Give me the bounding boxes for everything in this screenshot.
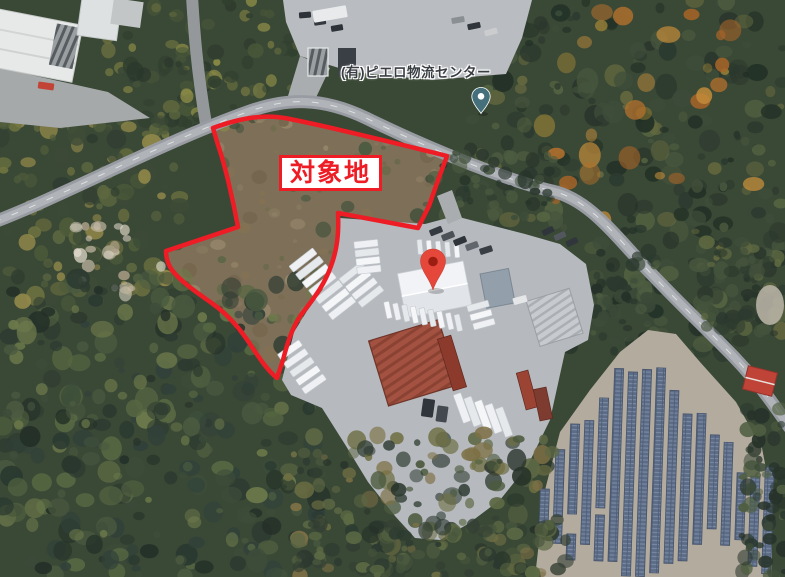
tree-blob — [630, 42, 646, 59]
tree-blob — [496, 180, 502, 187]
tree-blob — [147, 402, 169, 421]
tree-blob — [105, 379, 118, 392]
tree-blob — [14, 175, 21, 183]
tree-blob — [515, 97, 530, 109]
tree-blob — [747, 410, 756, 420]
tree-blob — [737, 309, 752, 320]
tree-blob — [99, 442, 110, 450]
tree-blob — [520, 43, 542, 62]
tree-blob — [455, 465, 465, 473]
tree-blob — [500, 563, 515, 577]
tree-blob — [174, 555, 187, 566]
tree-blob — [258, 23, 271, 32]
vehicle — [435, 405, 448, 422]
tree-blob — [110, 285, 120, 291]
tree-blob — [284, 473, 293, 481]
tree-blob — [511, 215, 518, 220]
tree-blob — [485, 548, 492, 556]
tree-blob — [346, 531, 362, 544]
tree-blob — [701, 321, 713, 332]
tree-blob — [414, 439, 420, 446]
tree-blob — [263, 264, 269, 271]
tree-blob — [173, 213, 184, 224]
tree-blob — [231, 346, 238, 352]
tree-blob — [492, 123, 500, 130]
tree-blob — [653, 260, 661, 267]
tree-blob — [382, 162, 386, 166]
tree-blob — [465, 498, 474, 509]
tree-blob — [262, 517, 281, 535]
tree-blob — [271, 125, 277, 131]
tree-blob — [718, 237, 732, 247]
tree-blob — [107, 265, 118, 274]
tree-blob — [279, 23, 285, 29]
tree-blob — [342, 468, 356, 480]
tree-blob — [245, 289, 268, 312]
tree-blob — [505, 151, 519, 165]
solar-panel-column — [594, 515, 605, 561]
tree-blob — [230, 556, 246, 571]
tree-blob — [708, 162, 722, 175]
tree-blob — [715, 58, 729, 72]
tree-blob — [765, 213, 774, 224]
tree-blob — [20, 426, 41, 447]
tree-blob — [563, 159, 581, 172]
tree-blob — [232, 375, 238, 381]
tree-blob — [203, 322, 216, 332]
tree-blob — [224, 71, 239, 83]
tree-blob — [118, 368, 125, 373]
tree-blob — [246, 548, 267, 573]
tree-blob — [485, 188, 494, 195]
tree-blob — [394, 159, 400, 165]
tree-blob — [606, 277, 619, 289]
tree-blob — [86, 535, 103, 554]
tree-blob — [762, 471, 772, 478]
tree-blob — [724, 266, 740, 277]
tree-blob — [50, 341, 62, 351]
tree-blob — [114, 358, 124, 369]
tree-blob — [241, 538, 248, 544]
tree-blob — [619, 146, 641, 169]
tree-blob — [145, 497, 152, 503]
tree-blob — [213, 59, 220, 66]
tree-blob — [341, 201, 354, 213]
tree-blob — [550, 563, 566, 576]
tree-blob — [562, 27, 571, 33]
tree-blob — [268, 276, 284, 294]
tree-blob — [323, 145, 328, 151]
tree-blob — [699, 130, 720, 152]
tree-blob — [122, 31, 133, 40]
tree-blob — [278, 431, 298, 445]
tree-blob — [157, 192, 166, 199]
tree-blob — [293, 239, 298, 243]
tree-blob — [199, 435, 208, 443]
tree-blob — [526, 152, 540, 168]
tree-blob — [146, 375, 155, 382]
tree-blob — [121, 121, 137, 132]
tree-blob — [656, 26, 680, 43]
tree-blob — [416, 176, 424, 182]
tree-blob — [139, 270, 160, 290]
tree-blob — [119, 421, 134, 439]
tree-blob — [198, 312, 208, 322]
tree-blob — [95, 353, 106, 362]
satellite-map[interactable]: (有)ピエロ物流センター 対象地 — [0, 0, 785, 577]
tree-blob — [438, 493, 456, 512]
tree-blob — [132, 565, 141, 571]
tree-blob — [368, 521, 384, 534]
tree-blob — [169, 162, 178, 172]
tree-blob — [710, 78, 727, 93]
tree-blob — [763, 533, 777, 545]
tree-blob — [165, 40, 178, 49]
tree-blob — [416, 460, 425, 468]
tree-blob — [374, 142, 379, 145]
tree-blob — [0, 329, 19, 345]
tree-blob — [297, 552, 306, 559]
tree-blob — [296, 204, 301, 210]
tree-blob — [739, 533, 746, 539]
tree-blob — [630, 62, 645, 73]
tree-blob — [735, 134, 741, 141]
tree-blob — [596, 249, 605, 257]
tree-blob — [287, 49, 297, 57]
tree-blob — [368, 548, 377, 557]
tree-blob — [381, 166, 391, 175]
tree-blob — [593, 236, 610, 250]
tree-blob — [649, 98, 665, 112]
tree-blob — [20, 157, 35, 167]
tree-blob — [635, 304, 647, 315]
tree-blob — [152, 81, 161, 89]
tree-blob — [464, 569, 474, 577]
tree-blob — [25, 498, 46, 518]
tree-blob — [741, 137, 750, 146]
tree-blob — [596, 293, 603, 298]
tree-blob — [206, 381, 224, 396]
tree-blob — [259, 199, 266, 204]
tree-blob — [161, 309, 171, 321]
tree-blob — [133, 230, 149, 249]
tree-blob — [14, 317, 33, 332]
tree-blob — [770, 330, 778, 336]
tree-blob — [31, 448, 45, 464]
tree-blob — [621, 291, 631, 302]
tree-blob — [117, 304, 133, 321]
tree-blob — [591, 284, 603, 295]
tree-blob — [489, 497, 504, 509]
tree-blob — [457, 553, 466, 561]
tree-blob — [748, 256, 755, 264]
tree-blob — [123, 235, 132, 242]
tree-blob — [489, 200, 500, 209]
tree-blob — [602, 296, 613, 307]
tree-blob — [129, 555, 140, 566]
tree-blob — [595, 20, 608, 31]
tree-blob — [370, 565, 385, 575]
tree-blob — [248, 43, 264, 58]
tree-blob — [689, 258, 710, 272]
tree-blob — [532, 180, 539, 187]
tree-blob — [769, 462, 780, 472]
tree-blob — [84, 437, 100, 448]
trailer — [417, 239, 423, 254]
tree-blob — [557, 53, 576, 74]
tree-blob — [480, 165, 490, 173]
tree-blob — [777, 421, 785, 428]
tree-blob — [277, 265, 282, 268]
tree-blob — [195, 560, 214, 573]
tree-blob — [243, 512, 257, 523]
tree-blob — [411, 550, 425, 560]
tree-blob — [507, 528, 524, 540]
tree-blob — [651, 140, 670, 161]
tree-blob — [541, 201, 548, 206]
tree-blob — [96, 203, 103, 209]
tree-blob — [171, 295, 195, 319]
tree-blob — [603, 100, 625, 123]
tree-blob — [129, 43, 137, 52]
tree-blob — [126, 263, 137, 273]
tree-blob — [719, 223, 728, 232]
tree-blob — [60, 562, 71, 571]
place-label[interactable]: (有)ピエロ物流センター — [341, 61, 491, 81]
tree-blob — [70, 401, 76, 407]
tree-blob — [218, 256, 226, 263]
tree-blob — [515, 84, 527, 94]
tree-blob — [447, 532, 458, 542]
tree-blob — [290, 219, 305, 230]
tree-blob — [126, 500, 137, 509]
tree-blob — [435, 542, 441, 547]
tree-blob — [98, 461, 121, 483]
tree-blob — [319, 248, 329, 255]
tree-blob — [181, 435, 190, 445]
tree-blob — [298, 448, 310, 458]
tree-blob — [134, 375, 147, 390]
tree-blob — [475, 427, 493, 440]
tree-blob — [265, 207, 270, 211]
tree-blob — [696, 87, 712, 104]
tree-blob — [734, 237, 749, 248]
tree-blob — [643, 316, 653, 325]
tree-blob — [24, 174, 37, 188]
tree-blob — [537, 212, 551, 222]
tree-blob — [743, 72, 750, 78]
solar-panel-column — [553, 449, 564, 516]
tree-blob — [70, 223, 83, 232]
tree-blob — [630, 299, 638, 305]
tree-blob — [660, 127, 669, 133]
tree-blob — [334, 507, 342, 514]
tree-blob — [727, 158, 734, 163]
tree-blob — [701, 313, 708, 320]
tree-blob — [9, 451, 18, 461]
tree-blob — [619, 319, 627, 324]
tree-blob — [765, 86, 775, 97]
tree-blob — [138, 169, 151, 184]
tree-blob — [205, 446, 213, 454]
tree-blob — [428, 452, 438, 459]
tree-blob — [532, 480, 543, 491]
tree-blob — [246, 13, 253, 18]
tree-blob — [499, 212, 520, 227]
tree-blob — [628, 227, 637, 234]
tree-blob — [163, 384, 176, 394]
tree-blob — [111, 187, 120, 196]
tree-blob — [118, 392, 128, 400]
tree-blob — [260, 191, 266, 195]
tree-blob — [749, 264, 765, 279]
tree-blob — [598, 311, 610, 321]
tree-blob — [507, 493, 525, 507]
tree-blob — [278, 295, 285, 300]
tree-blob — [101, 42, 115, 58]
tree-blob — [6, 287, 20, 297]
tree-blob — [81, 222, 89, 231]
small-shed — [308, 48, 328, 76]
tree-blob — [2, 227, 11, 236]
vehicle — [299, 11, 311, 18]
tree-blob — [591, 4, 613, 21]
tree-blob — [58, 489, 66, 498]
tree-blob — [26, 518, 38, 532]
tree-blob — [233, 381, 255, 401]
tree-blob — [610, 338, 621, 347]
tree-blob — [364, 446, 376, 456]
tree-blob — [406, 487, 413, 492]
tree-blob — [150, 303, 161, 314]
tree-blob — [655, 172, 665, 180]
tree-blob — [516, 563, 527, 573]
tree-blob — [659, 41, 677, 61]
tree-blob — [110, 241, 120, 253]
tree-blob — [67, 459, 85, 478]
tree-blob — [678, 112, 687, 123]
tree-blob — [714, 273, 725, 283]
tree-blob — [86, 236, 93, 242]
tree-blob — [119, 455, 129, 464]
tree-blob — [27, 402, 35, 411]
tree-blob — [206, 332, 226, 354]
tree-blob — [57, 203, 70, 217]
tree-blob — [36, 359, 48, 370]
tree-blob — [92, 389, 105, 404]
tree-blob — [410, 469, 424, 482]
tree-blob — [316, 546, 323, 554]
tree-blob — [99, 486, 123, 505]
tree-blob — [176, 61, 182, 68]
tree-blob — [716, 46, 733, 58]
tree-blob — [242, 271, 250, 279]
tree-blob — [540, 572, 546, 577]
tree-blob — [434, 519, 451, 536]
tree-blob — [2, 409, 12, 418]
tree-blob — [177, 344, 198, 359]
tree-blob — [41, 395, 49, 403]
tree-blob — [580, 162, 601, 185]
tree-blob — [179, 472, 187, 478]
tree-blob — [630, 278, 638, 284]
tree-blob — [470, 462, 477, 470]
tree-blob — [530, 188, 541, 196]
tree-blob — [279, 256, 284, 261]
tree-blob — [359, 142, 372, 156]
tree-blob — [774, 259, 782, 267]
tree-blob — [478, 526, 493, 538]
tree-blob — [737, 550, 752, 566]
tree-blob — [751, 207, 766, 218]
tree-blob — [215, 469, 235, 486]
tree-blob — [762, 256, 775, 269]
tree-blob — [100, 530, 108, 538]
tree-blob — [171, 422, 183, 431]
tree-blob — [699, 295, 714, 312]
tree-blob — [401, 546, 407, 552]
tree-blob — [334, 558, 342, 566]
tree-blob — [48, 498, 69, 517]
tree-blob — [102, 404, 116, 418]
tree-blob — [41, 307, 55, 317]
tree-blob — [758, 501, 771, 510]
tree-blob — [606, 257, 620, 272]
tree-blob — [630, 283, 636, 288]
tree-blob — [132, 81, 140, 88]
tree-blob — [66, 269, 90, 289]
tree-blob — [684, 9, 700, 20]
tree-blob — [754, 325, 766, 338]
aerial-imagery — [0, 0, 785, 577]
tree-blob — [313, 516, 328, 532]
tree-blob — [263, 411, 284, 426]
site-area-label: 対象地 — [279, 155, 382, 191]
tree-blob — [85, 246, 96, 253]
tree-blob — [767, 431, 780, 446]
tree-blob — [567, 16, 574, 21]
tree-blob — [309, 532, 322, 541]
tree-blob — [703, 63, 713, 73]
tree-blob — [513, 435, 525, 443]
tree-blob — [241, 87, 250, 97]
tree-blob — [552, 25, 559, 32]
tree-blob — [555, 10, 562, 16]
tree-blob — [741, 289, 756, 299]
tree-blob — [507, 449, 526, 472]
tree-blob — [35, 218, 52, 231]
tree-blob — [554, 83, 560, 90]
tree-blob — [36, 383, 48, 395]
tree-blob — [196, 246, 208, 254]
tree-blob — [691, 179, 703, 192]
tree-blob — [542, 189, 552, 197]
tree-blob — [610, 347, 618, 356]
tree-blob — [151, 211, 162, 222]
tree-blob — [274, 151, 278, 154]
tree-blob — [371, 471, 387, 489]
tree-blob — [183, 417, 200, 436]
tree-blob — [305, 428, 323, 445]
tree-blob — [11, 392, 20, 399]
tree-blob — [545, 446, 560, 458]
tree-blob — [252, 170, 267, 184]
tree-blob — [43, 258, 53, 268]
tree-blob — [313, 478, 325, 492]
tree-blob — [539, 435, 548, 445]
tree-blob — [118, 271, 130, 281]
tree-blob — [313, 540, 320, 548]
